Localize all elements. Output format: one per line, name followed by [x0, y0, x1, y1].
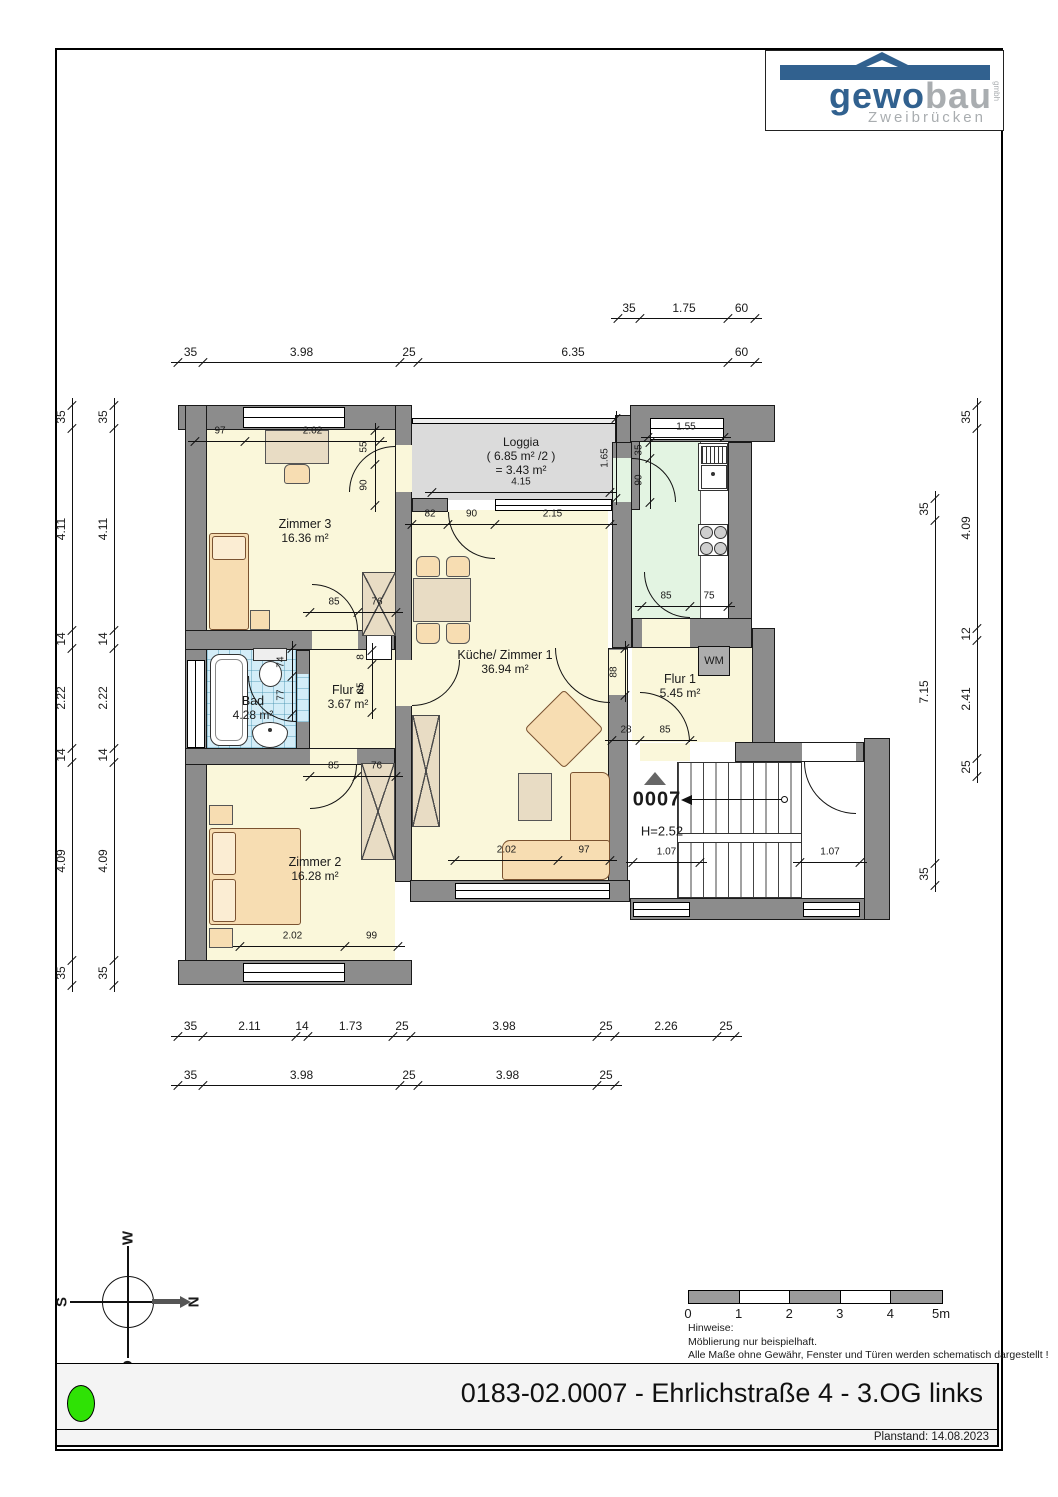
dim-z2-bottom-label-0: 2.02 — [283, 931, 302, 942]
dim-top1-label-0: 35 — [622, 301, 635, 315]
note-line-1: Hinweise: — [688, 1322, 1049, 1336]
window-stair-right — [803, 902, 860, 917]
dim-left2-label-1: 4.11 — [96, 518, 110, 540]
company-logo: gewobau gmbh Zweibrücken — [765, 50, 1004, 131]
dim-bottom2-label-0: 35 — [184, 1068, 197, 1082]
dim-top1-line — [611, 318, 762, 319]
dim-z2-bottom-label-1: 99 — [366, 931, 377, 942]
opening-bad-door — [297, 674, 309, 722]
dim-loggia-depth-line — [616, 411, 617, 505]
opening-kitchen-flur1 — [642, 619, 690, 647]
logo-roof-notch — [866, 60, 898, 67]
dim-z2-bottom-line — [233, 946, 405, 947]
dim-z3-bottom-line — [303, 612, 403, 613]
dim-right-outer-label-3: 2.41 — [959, 687, 973, 710]
dim-left2-label-4: 14 — [96, 748, 110, 761]
status-dot — [67, 1385, 95, 1422]
dim-left1-label-5: 4.09 — [54, 849, 68, 872]
apartment-number: 0007 — [633, 789, 682, 812]
dim-right-outer-label-4: 25 — [959, 760, 973, 773]
scale-label-3: 3 — [836, 1306, 843, 1321]
scale-segment-3 — [841, 1291, 892, 1303]
loggia-parapet — [412, 418, 630, 424]
dim-left1-label-3: 2.22 — [54, 686, 68, 709]
dim-below-loggia-label-0: 82 — [424, 509, 435, 520]
window-zimmer3 — [243, 407, 345, 428]
label-loggia: Loggia( 6.85 m² /2 )= 3.43 m² — [487, 435, 556, 477]
dining-chair-1 — [416, 556, 440, 577]
dim-stairs-left-line — [626, 862, 707, 863]
window-living — [455, 883, 610, 899]
dim-left1-label-6: 35 — [54, 966, 68, 979]
dim-left1-label-0: 35 — [54, 410, 68, 423]
dim-living-bottom-line — [448, 860, 617, 861]
stair-arrowhead-icon — [681, 795, 692, 805]
dim-stairs-right-line — [793, 862, 867, 863]
dim-z3-right-label-1: 90 — [359, 479, 370, 490]
dim-bottom1-label-3: 1.73 — [339, 1019, 362, 1033]
pillow-zimmer2-b — [212, 879, 236, 922]
dining-table — [413, 578, 471, 622]
dim-top2-label-4: 60 — [735, 345, 748, 359]
dim-flur2-door-line — [372, 643, 373, 719]
title-strip: 0183-02.0007 - Ehrlichstraße 4 - 3.OG li… — [55, 1363, 999, 1429]
dim-z2-top-label-0: 85 — [328, 761, 339, 772]
label-zimmer3: Zimmer 316.36 m² — [279, 517, 332, 545]
dim-z2-top-label-1: 76 — [371, 761, 382, 772]
plan-notes: Hinweise: Möblierung nur beispielhaft. A… — [688, 1322, 1049, 1363]
stairwell-height: H=2.52 — [641, 824, 683, 839]
dim-bottom1-label-1: 2.11 — [238, 1019, 260, 1033]
note-line-3: Alle Maße ohne Gewähr, Fenster und Türen… — [688, 1349, 1049, 1363]
scale-label-5: 5m — [932, 1306, 950, 1321]
dim-below-loggia-line — [405, 524, 617, 525]
scale-label-1: 1 — [735, 1306, 742, 1321]
dim-kitchen-bottom-line — [635, 606, 735, 607]
wall-stair-right — [864, 738, 890, 920]
stair-landing-line — [678, 833, 801, 843]
nightstand-zimmer2-a — [209, 805, 233, 825]
staircase — [677, 762, 802, 898]
opening-zimmer3-door — [396, 445, 412, 492]
sink-drainer-icon — [701, 446, 727, 464]
scale-label-0: 0 — [684, 1306, 691, 1321]
dim-kitchen-door-label-0: 35 — [634, 444, 645, 455]
dim-left2-label-0: 35 — [96, 410, 110, 423]
compass-circle — [102, 1276, 154, 1328]
opening-entry-door — [640, 743, 690, 761]
dim-top2-label-1: 3.98 — [290, 345, 313, 359]
dim-bottom1-line — [171, 1036, 742, 1037]
dim-z3-top-label-0: 97 — [214, 426, 225, 437]
dim-kueche-flur1-door-label-0: 88 — [609, 666, 620, 677]
scale-label-4: 4 — [887, 1306, 894, 1321]
dim-flur1-door-line — [605, 740, 697, 741]
compass-north-bar — [152, 1299, 180, 1304]
compass-w: W — [120, 1231, 137, 1245]
dim-right-outer-label-1: 4.09 — [959, 516, 973, 539]
planstand-date: Planstand: 14.08.2023 — [874, 1431, 989, 1443]
dim-bad-fixture-label-1: 77 — [276, 689, 287, 700]
plan-title: 0183-02.0007 - Ehrlichstraße 4 - 3.OG li… — [461, 1378, 983, 1409]
dim-top1-label-1: 1.75 — [672, 301, 695, 315]
dim-loggia-width-line — [425, 492, 617, 493]
dim-kitchen-window-label-0: 1.55 — [676, 422, 695, 433]
washing-machine: WM — [698, 646, 730, 676]
dim-right-outer-label-2: 12 — [959, 627, 973, 640]
dim-kitchen-bottom-label-1: 75 — [703, 591, 714, 602]
opening-neighbor-door — [802, 743, 856, 761]
dim-living-bottom-label-0: 2.02 — [497, 845, 516, 856]
dim-z3-bottom-label-0: 85 — [328, 597, 339, 608]
dim-kitchen-bottom-label-0: 85 — [660, 591, 671, 602]
sink-dot — [711, 472, 715, 476]
dim-top2-label-2: 25 — [402, 345, 415, 359]
dim-living-bottom-label-1: 97 — [578, 845, 589, 856]
dim-bottom1-label-0: 35 — [184, 1019, 197, 1033]
dim-top2-label-3: 6.35 — [561, 345, 584, 359]
stove-icon — [698, 524, 728, 556]
desk-chair — [284, 464, 310, 484]
wm-label: WM — [704, 655, 724, 667]
dining-chair-2 — [446, 556, 470, 577]
window-bad — [187, 660, 205, 748]
compass-s: S — [54, 1297, 71, 1307]
dim-stairs-right-label-0: 1.07 — [820, 847, 839, 858]
apartment-marker-icon — [644, 772, 666, 785]
dim-right-outer-label-0: 35 — [959, 410, 973, 423]
planstand-strip: Planstand: 14.08.2023 — [55, 1429, 999, 1447]
opening-zimmer3-flur2 — [312, 631, 358, 649]
pillow-zimmer2-a — [212, 832, 236, 875]
dim-top1-label-2: 60 — [735, 301, 748, 315]
dining-chair-4 — [446, 623, 470, 644]
dim-left1-label-2: 14 — [54, 632, 68, 645]
scale-segment-1 — [740, 1291, 791, 1303]
dim-loggia-width-label-0: 4.15 — [511, 477, 530, 488]
dim-bottom2-label-1: 3.98 — [290, 1068, 313, 1082]
dim-left2-label-3: 2.22 — [96, 686, 110, 709]
dim-loggia-depth-label-0: 1.65 — [600, 448, 611, 467]
dim-kitchen-door-line — [650, 435, 651, 509]
opening-flur2-kueche — [396, 660, 412, 706]
window-zimmer2 — [243, 963, 345, 982]
compass-n: N — [186, 1297, 203, 1308]
sink-basin-icon — [701, 465, 727, 489]
dim-left1-label-4: 14 — [54, 748, 68, 761]
window-stair-left — [633, 902, 690, 917]
dim-top2-label-0: 35 — [184, 345, 197, 359]
stair-start-dot — [781, 796, 788, 803]
label-zimmer2: Zimmer 216.28 m² — [289, 855, 342, 883]
dim-bottom2-label-4: 25 — [599, 1068, 612, 1082]
dim-z3-bottom-label-1: 76 — [371, 597, 382, 608]
dim-bottom2-label-2: 25 — [402, 1068, 415, 1082]
shaft-niche — [366, 634, 392, 660]
logo-city: Zweibrücken — [780, 109, 986, 126]
dim-left2-label-5: 4.09 — [96, 849, 110, 872]
dim-bottom1-label-5: 3.98 — [492, 1019, 515, 1033]
kitchen-sink-unit — [698, 443, 728, 491]
dim-right-inner-label-0: 35 — [917, 502, 931, 515]
dim-z2-top-line — [303, 776, 403, 777]
plan-sheet: gewobau gmbh Zweibrücken — [0, 0, 1058, 1497]
scale-bar — [688, 1290, 943, 1304]
scale-segment-4 — [891, 1291, 942, 1303]
pillow-zimmer3 — [212, 536, 246, 560]
stair-direction-line — [690, 799, 784, 800]
dim-bottom1-label-7: 2.26 — [654, 1019, 677, 1033]
scale-segment-0 — [689, 1291, 740, 1303]
dim-bottom1-label-8: 25 — [719, 1019, 732, 1033]
dim-right-inner-label-2: 35 — [917, 867, 931, 880]
sink-faucet-dot — [268, 728, 272, 732]
dim-z3-right-label-0: 55 — [359, 441, 370, 452]
dim-z3-right-line — [375, 423, 376, 512]
dim-bottom1-label-2: 14 — [295, 1019, 308, 1033]
dim-bottom2-line — [171, 1085, 622, 1086]
shelf-living — [412, 715, 440, 827]
scale-label-2: 2 — [786, 1306, 793, 1321]
dim-below-loggia-label-1: 90 — [466, 509, 477, 520]
dim-left2-label-6: 35 — [96, 966, 110, 979]
scale-segment-2 — [790, 1291, 841, 1303]
dim-kitchen-door-label-1: 90 — [634, 474, 645, 485]
wardrobe-zimmer2 — [361, 763, 395, 860]
dim-z3-top-label-1: 2.02 — [303, 426, 322, 437]
label-kueche: Küche/ Zimmer 136.94 m² — [457, 648, 552, 676]
note-line-2: Möblierung nur beispielhaft. — [688, 1336, 1049, 1350]
dim-bottom1-label-4: 25 — [395, 1019, 408, 1033]
dim-flur2-door-label-0: 8 — [356, 654, 367, 660]
dim-right-inner-line — [935, 491, 936, 892]
dim-flur1-door-label-1: 85 — [659, 725, 670, 736]
dim-bottom1-label-6: 25 — [599, 1019, 612, 1033]
dim-flur1-door-label-0: 28 — [620, 725, 631, 736]
dim-left2-label-2: 14 — [96, 632, 110, 645]
dim-right-outer-line — [977, 398, 978, 783]
dim-bad-fixture-label-0: 74 — [276, 656, 287, 667]
dim-right-inner-label-1: 7.15 — [917, 680, 931, 703]
dim-below-loggia-label-2: 2.15 — [543, 509, 562, 520]
dim-left1-label-1: 4.11 — [54, 518, 68, 540]
dining-chair-3 — [416, 623, 440, 644]
dim-z3-top-line — [188, 441, 387, 442]
logo-gmbh: gmbh — [992, 81, 1001, 101]
dim-bottom2-label-3: 3.98 — [496, 1068, 519, 1082]
dim-top2-line — [171, 362, 762, 363]
coffee-table — [518, 773, 552, 821]
label-flur1: Flur 15.45 m² — [660, 672, 701, 700]
dim-flur2-door-label-1: 85 — [356, 682, 367, 693]
dim-bad-fixture-line — [292, 641, 293, 721]
nightstand-zimmer3 — [250, 610, 270, 630]
dim-left2-line — [114, 398, 115, 992]
label-bad: Bad4.28 m² — [233, 694, 274, 722]
dim-stairs-left-label-0: 1.07 — [657, 847, 676, 858]
dim-left1-line — [72, 398, 73, 992]
nightstand-zimmer2-b — [209, 928, 233, 948]
